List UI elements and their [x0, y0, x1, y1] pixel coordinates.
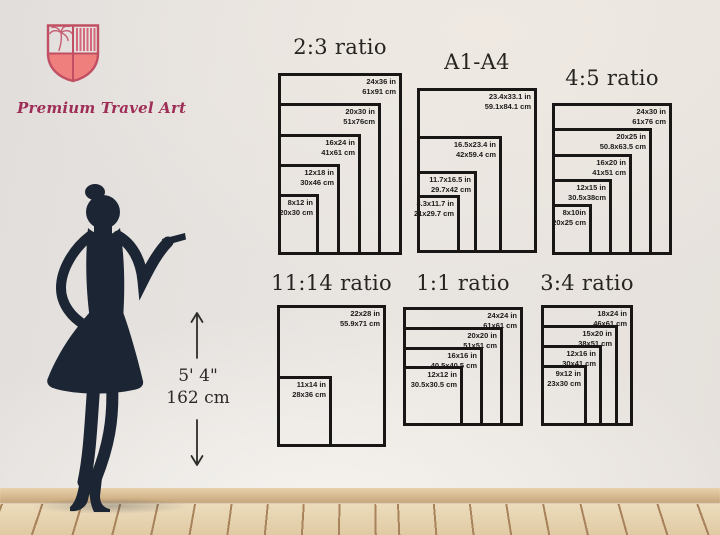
size-centimeters: 30.5x38cm	[568, 193, 606, 203]
size-inches: 11.7x16.5 in	[429, 175, 471, 185]
size-inches: 20x30 in	[343, 107, 375, 117]
size-label: 16x24 in41x61 cm	[321, 138, 355, 158]
size-centimeters: 55.9x71 cm	[340, 319, 380, 329]
size-rect: 11x14 in28x36 cm	[277, 376, 332, 447]
size-inches: 22x28 in	[340, 309, 380, 319]
size-inches: 20x20 in	[463, 331, 497, 341]
size-centimeters: 20x30 cm	[279, 208, 313, 218]
size-inches: 18x24 in	[593, 309, 627, 319]
size-label: 16.5x23.4 in42x59.4 cm	[454, 140, 496, 160]
size-inches: 23.4x33.1 in	[485, 92, 531, 102]
chart-title: A1-A4	[444, 50, 510, 74]
size-label: 11x14 in28x36 cm	[292, 380, 326, 400]
size-inches: 24x30 in	[632, 107, 666, 117]
size-label: 12x15 in30.5x38cm	[568, 183, 606, 203]
size-centimeters: 23x30 cm	[547, 379, 581, 389]
size-label: 12x18 in30x46 cm	[300, 168, 334, 188]
size-rect: 8.3x11.7 in21x29.7 cm	[417, 195, 460, 253]
size-centimeters: 28x36 cm	[292, 390, 326, 400]
chart-3-4-ratio: 3:4 ratio18x24 in46x61 cm15x20 in38x51 c…	[541, 305, 633, 426]
size-label: 8x12 in20x30 cm	[279, 198, 313, 218]
size-inches: 12x16 in	[562, 349, 596, 359]
size-label: 23.4x33.1 in59.1x84.1 cm	[485, 92, 531, 112]
size-centimeters: 50.8x63.5 cm	[600, 142, 646, 152]
chart-1-1-ratio: 1:1 ratio24x24 in61x61 cm20x20 in51x51 c…	[403, 307, 523, 426]
size-centimeters: 51x76cm	[343, 117, 375, 127]
size-label: 8x10in20x25 cm	[552, 208, 586, 228]
chart-title: 2:3 ratio	[293, 35, 387, 59]
size-centimeters: 21x29.7 cm	[414, 209, 454, 219]
size-label: 20x25 in50.8x63.5 cm	[600, 132, 646, 152]
size-rect: 8x10in20x25 cm	[552, 204, 592, 255]
size-rect: 9x12 in23x30 cm	[541, 365, 587, 426]
size-centimeters: 41x61 cm	[321, 148, 355, 158]
size-inches: 24x36 in	[362, 77, 396, 87]
size-centimeters: 61x91 cm	[362, 87, 396, 97]
size-inches: 20x25 in	[600, 132, 646, 142]
size-charts: 2:3 ratio24x36 in61x91 cm20x30 in51x76cm…	[0, 0, 720, 535]
size-label: 20x30 in51x76cm	[343, 107, 375, 127]
chart-11-14-ratio: 11:14 ratio22x28 in55.9x71 cm11x14 in28x…	[277, 305, 386, 447]
chart-2-3-ratio: 2:3 ratio24x36 in61x91 cm20x30 in51x76cm…	[278, 73, 402, 255]
size-label: 12x12 in30.5x30.5 cm	[411, 370, 457, 390]
size-centimeters: 20x25 cm	[552, 218, 586, 228]
size-centimeters: 41x51 cm	[592, 168, 626, 178]
size-label: 22x28 in55.9x71 cm	[340, 309, 380, 329]
size-inches: 8.3x11.7 in	[414, 199, 454, 209]
chart-4-5-ratio: 4:5 ratio24x30 in61x76 cm20x25 in50.8x63…	[552, 103, 672, 255]
size-guide-scene: Premium Travel Art 5' 4" 162 cm	[0, 0, 720, 535]
size-inches: 15x20 in	[578, 329, 612, 339]
size-label: 16x20 in41x51 cm	[592, 158, 626, 178]
chart-title: 1:1 ratio	[416, 271, 510, 295]
size-label: 11.7x16.5 in29.7x42 cm	[429, 175, 471, 195]
size-label: 24x36 in61x91 cm	[362, 77, 396, 97]
size-inches: 11x14 in	[292, 380, 326, 390]
size-centimeters: 29.7x42 cm	[429, 185, 471, 195]
size-label: 8.3x11.7 in21x29.7 cm	[414, 199, 454, 219]
size-rect: 12x12 in30.5x30.5 cm	[403, 366, 463, 426]
chart-title: 3:4 ratio	[540, 271, 634, 295]
size-inches: 24x24 in	[483, 311, 517, 321]
chart-title: 11:14 ratio	[271, 271, 392, 295]
chart-title: 4:5 ratio	[565, 66, 659, 90]
size-inches: 9x12 in	[547, 369, 581, 379]
size-inches: 12x12 in	[411, 370, 457, 380]
size-rect: 8x12 in20x30 cm	[278, 194, 319, 255]
size-label: 9x12 in23x30 cm	[547, 369, 581, 389]
size-centimeters: 59.1x84.1 cm	[485, 102, 531, 112]
size-inches: 8x10in	[552, 208, 586, 218]
size-inches: 12x15 in	[568, 183, 606, 193]
size-centimeters: 61x76 cm	[632, 117, 666, 127]
size-label: 24x30 in61x76 cm	[632, 107, 666, 127]
size-inches: 8x12 in	[279, 198, 313, 208]
chart-a1-a4: A1-A423.4x33.1 in59.1x84.1 cm16.5x23.4 i…	[417, 88, 537, 253]
size-centimeters: 30x46 cm	[300, 178, 334, 188]
size-inches: 16x20 in	[592, 158, 626, 168]
size-inches: 16x24 in	[321, 138, 355, 148]
size-inches: 16x16 in	[431, 351, 477, 361]
size-centimeters: 42x59.4 cm	[454, 150, 496, 160]
size-inches: 12x18 in	[300, 168, 334, 178]
size-centimeters: 30.5x30.5 cm	[411, 380, 457, 390]
size-inches: 16.5x23.4 in	[454, 140, 496, 150]
